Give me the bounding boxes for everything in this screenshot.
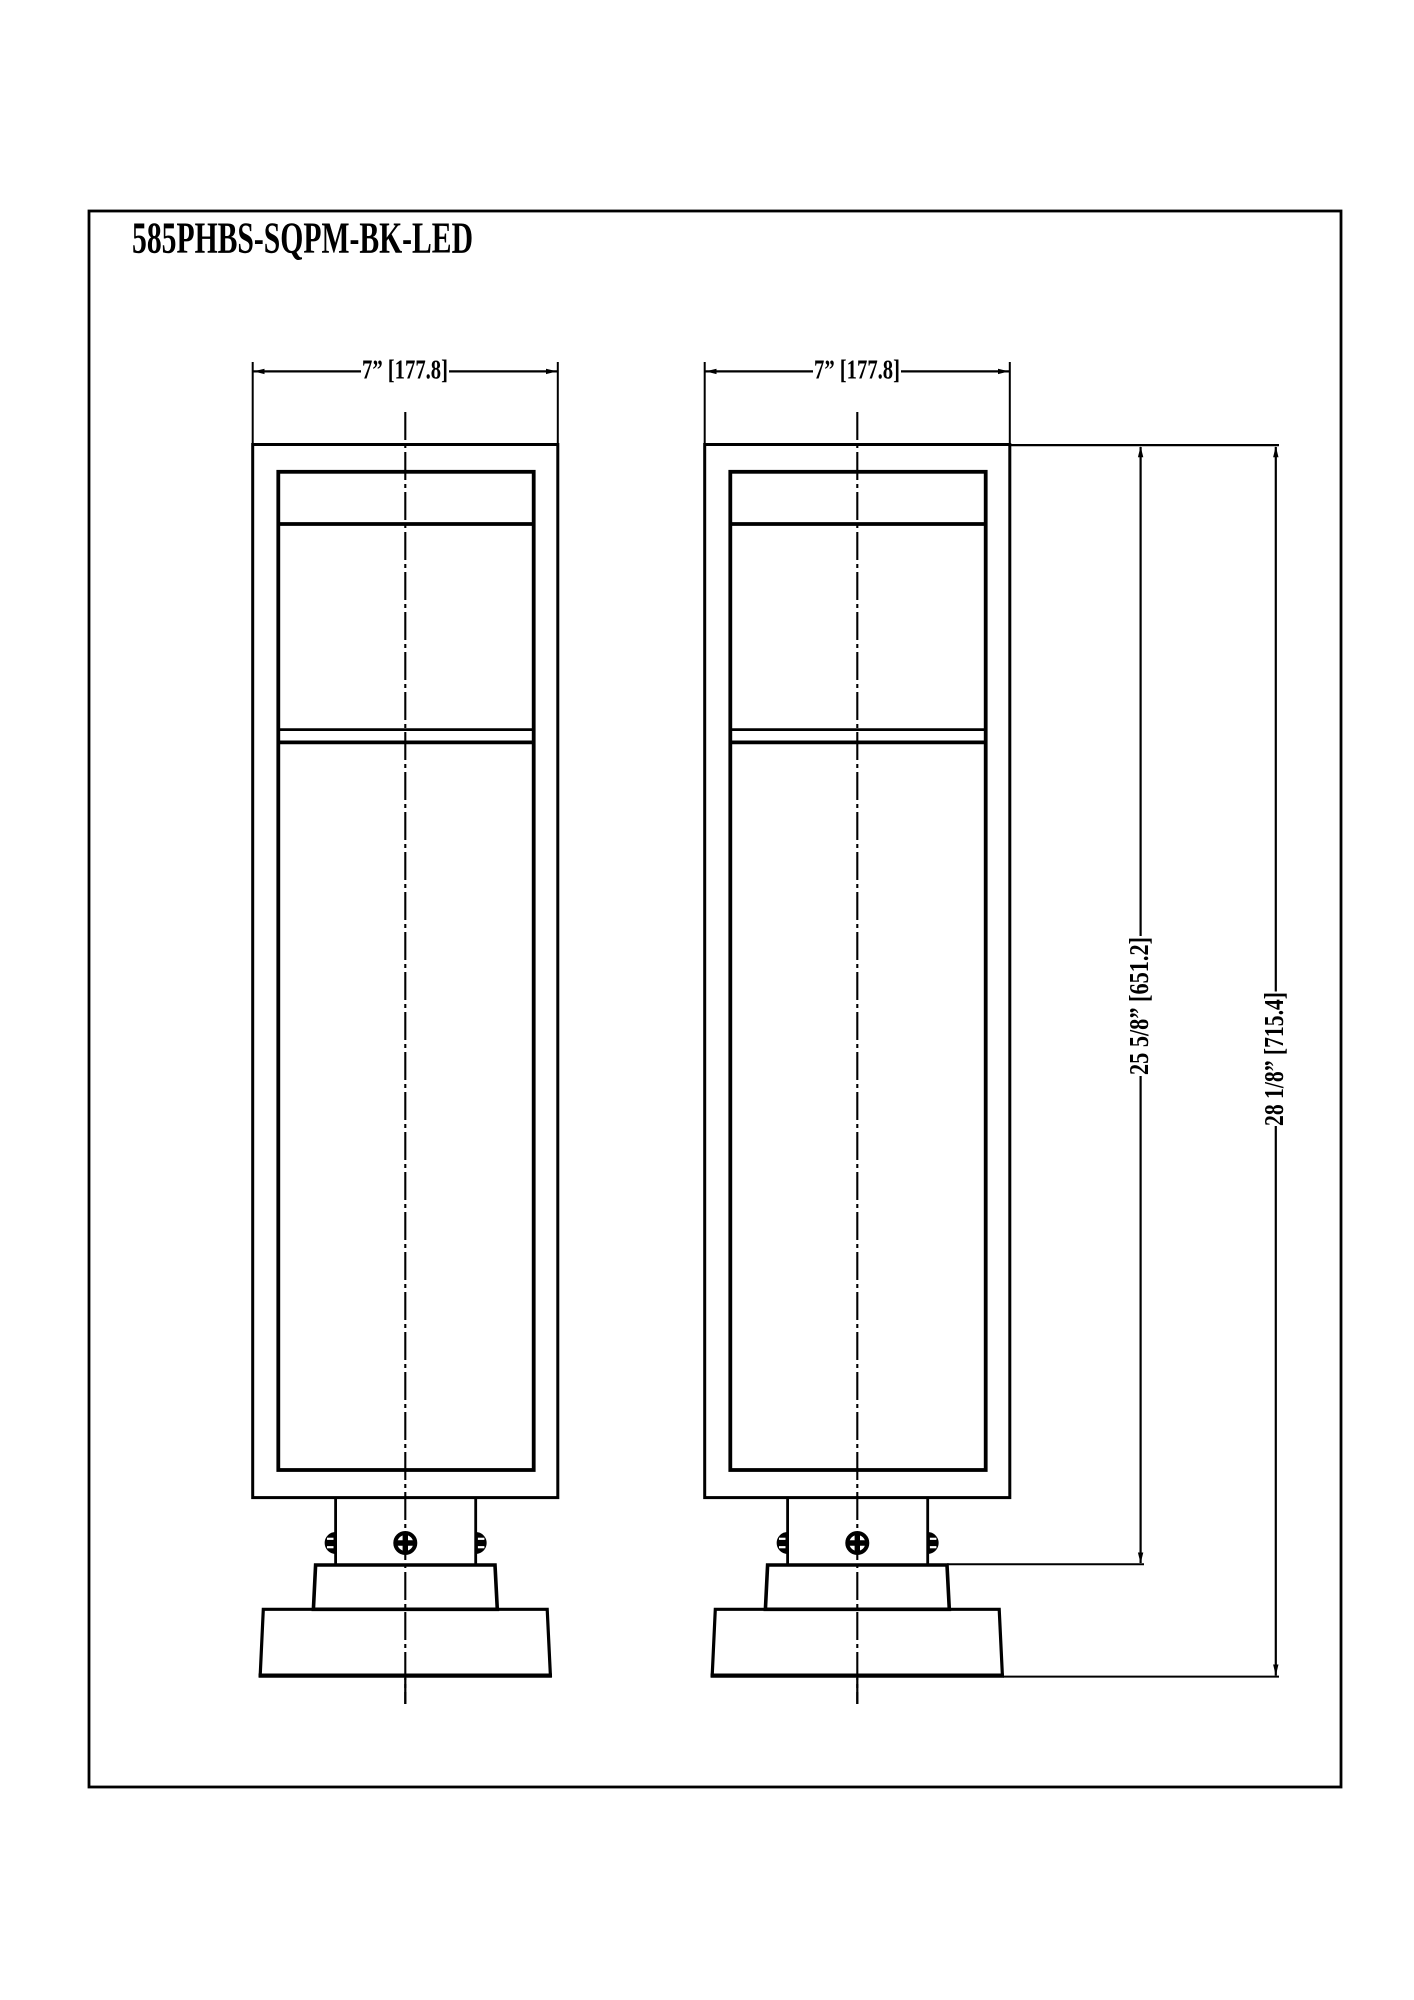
svg-text:28 1/8” [715.4]: 28 1/8” [715.4]: [1259, 992, 1289, 1126]
svg-text:7” [177.8]: 7” [177.8]: [362, 355, 448, 385]
svg-text:585PHBS-SQPM-BK-LED: 585PHBS-SQPM-BK-LED: [132, 214, 473, 263]
svg-text:7” [177.8]: 7” [177.8]: [814, 355, 900, 385]
svg-text:25 5/8” [651.2]: 25 5/8” [651.2]: [1124, 937, 1154, 1075]
